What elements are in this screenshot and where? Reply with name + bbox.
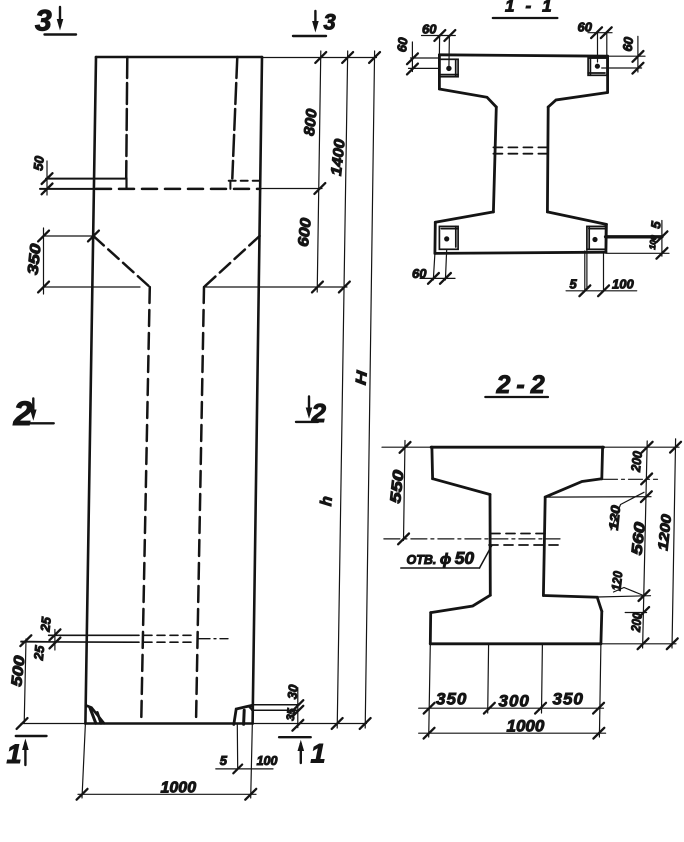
svg-text:500: 500	[8, 654, 28, 687]
svg-text:1: 1	[311, 739, 326, 769]
svg-text:120: 120	[606, 504, 623, 531]
svg-text:50: 50	[30, 155, 47, 172]
svg-text:350: 350	[553, 690, 584, 709]
svg-text:200: 200	[628, 612, 645, 633]
svg-text:200: 200	[629, 450, 646, 473]
svg-text:30: 30	[284, 683, 301, 700]
svg-text:100: 100	[647, 234, 658, 249]
svg-text:60: 60	[412, 266, 427, 281]
svg-text:1-1: 1-1	[505, 0, 563, 16]
svg-text:1000: 1000	[507, 717, 545, 736]
svg-text:100: 100	[257, 754, 278, 768]
svg-text:2-2: 2-2	[496, 371, 551, 399]
svg-text:300: 300	[499, 692, 530, 711]
svg-text:100: 100	[612, 277, 634, 292]
svg-text:3: 3	[324, 10, 336, 35]
svg-text:5: 5	[570, 277, 578, 292]
svg-text:35: 35	[285, 707, 298, 721]
svg-text:2: 2	[311, 398, 327, 428]
svg-text:5: 5	[220, 753, 228, 768]
svg-text:3: 3	[35, 5, 52, 38]
svg-text:800: 800	[301, 108, 320, 137]
svg-text:25: 25	[31, 644, 48, 662]
svg-text:1: 1	[7, 739, 22, 769]
svg-text:60: 60	[620, 35, 637, 52]
svg-text:60: 60	[394, 36, 411, 53]
svg-text:350: 350	[24, 242, 44, 275]
svg-text:60: 60	[422, 22, 437, 37]
svg-text:560: 560	[628, 521, 648, 556]
svg-text:600: 600	[295, 217, 315, 248]
svg-text:60: 60	[578, 20, 593, 35]
svg-text:350: 350	[436, 690, 467, 709]
svg-text:25: 25	[37, 616, 54, 634]
svg-text:h: h	[318, 495, 336, 507]
svg-text:2: 2	[13, 395, 33, 433]
svg-text:550: 550	[387, 469, 407, 504]
svg-text:1000: 1000	[161, 780, 197, 797]
